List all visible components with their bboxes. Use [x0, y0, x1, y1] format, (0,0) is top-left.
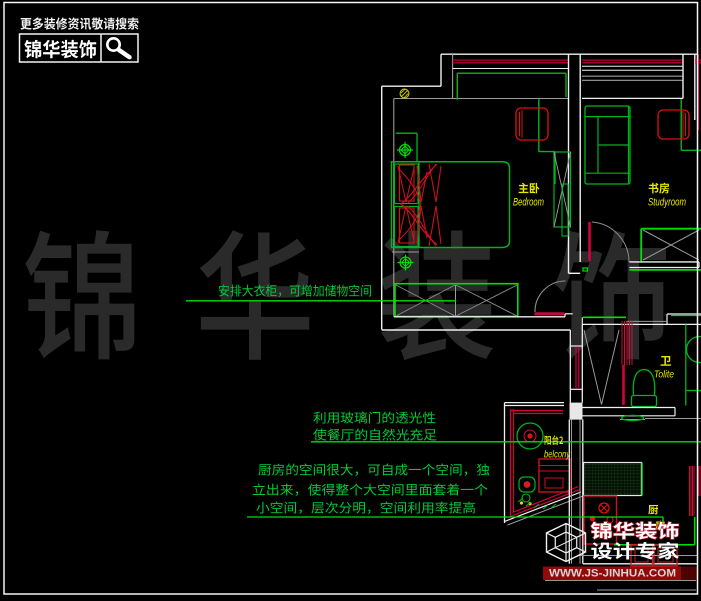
svg-text:WWW.JS-JINHUA.COM: WWW.JS-JINHUA.COM [549, 568, 676, 580]
svg-text:belcony: belcony [544, 449, 571, 461]
svg-text:Studyroom: Studyroom [648, 197, 686, 209]
svg-text:Tolite: Tolite [654, 369, 674, 381]
svg-text:Bedroom: Bedroom [513, 197, 544, 209]
